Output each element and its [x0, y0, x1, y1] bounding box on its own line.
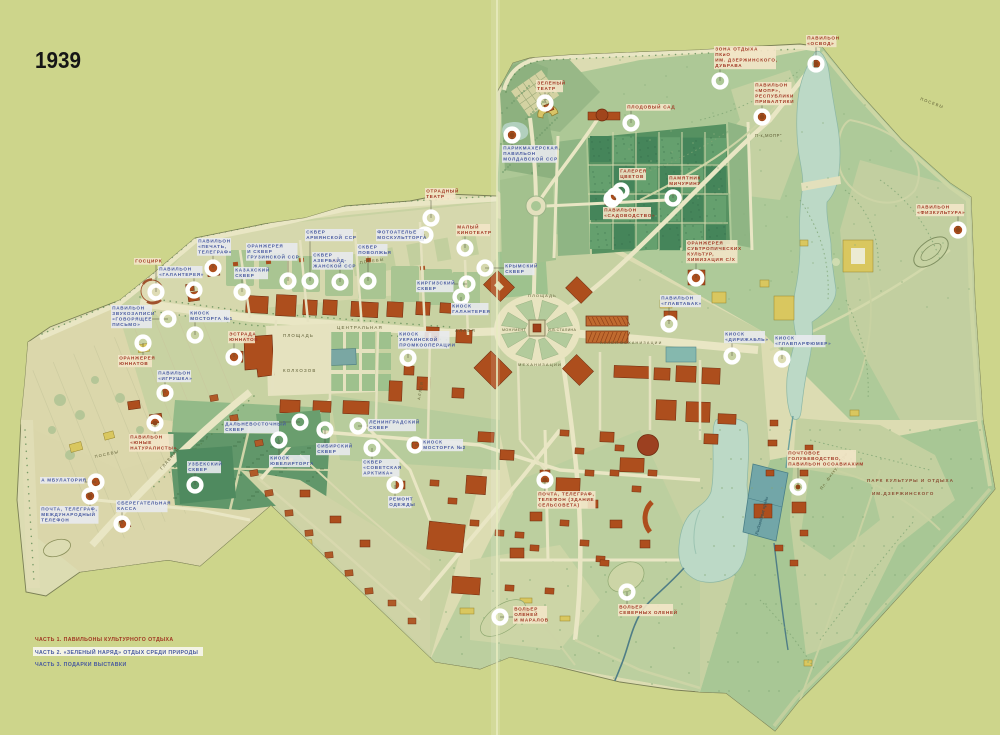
svg-text:ПАВИЛЬОН: ПАВИЛЬОН: [917, 205, 950, 210]
svg-text:ПОЧТА, ТЕЛЕГРАФ,: ПОЧТА, ТЕЛЕГРАФ,: [538, 492, 594, 497]
svg-text:ИМ.ДЗЕРЖИНСКОГО: ИМ.ДЗЕРЖИНСКОГО: [872, 491, 934, 496]
svg-text:СКВЕР: СКВЕР: [235, 273, 254, 278]
svg-text:МОСТОРГА №2: МОСТОРГА №2: [423, 445, 466, 450]
svg-text:СКВЕР: СКВЕР: [417, 286, 436, 291]
svg-text:КОЛХОЗОВ: КОЛХОЗОВ: [283, 368, 317, 373]
svg-text:«САДОВОДСТВО»: «САДОВОДСТВО»: [604, 213, 655, 218]
svg-text:АЗЕРБАЙД-: АЗЕРБАЙД-: [313, 256, 347, 263]
svg-text:МЕЖДУНАРОДНЫЙ: МЕЖДУНАРОДНЫЙ: [41, 510, 96, 517]
svg-text:ТЕАТР: ТЕАТР: [426, 194, 445, 199]
svg-text:«ГЛАВТАБАК»: «ГЛАВТАБАК»: [661, 301, 702, 306]
svg-text:ЭСТРАДА: ЭСТРАДА: [229, 332, 256, 337]
svg-text:ОРАНЖЕРЕЯ: ОРАНЖЕРЕЯ: [247, 244, 283, 249]
svg-text:КРЫМСКИЙ: КРЫМСКИЙ: [505, 262, 538, 269]
svg-text:ЧАСТЬ 3. ПОДАРКИ ВЫСТАВКИ: ЧАСТЬ 3. ПОДАРКИ ВЫСТАВКИ: [35, 662, 127, 668]
svg-text:«ОСВОД»: «ОСВОД»: [807, 41, 834, 46]
svg-text:УКРАИНСКОЙ: УКРАИНСКОЙ: [399, 335, 438, 342]
svg-text:И МАРАЛОВ: И МАРАЛОВ: [514, 618, 549, 623]
svg-text:КУЛЬТУР,: КУЛЬТУР,: [687, 252, 714, 257]
svg-text:«СОВЕТСКАЯ: «СОВЕТСКАЯ: [363, 465, 402, 470]
svg-text:ПЛОДОВЫЙ САД: ПЛОДОВЫЙ САД: [627, 103, 675, 110]
svg-text:ПАВИЛЬОН: ПАВИЛЬОН: [604, 208, 637, 213]
svg-text:ТЕАТР: ТЕАТР: [537, 86, 556, 91]
svg-text:ЛЕНИНГРАДСКИЙ: ЛЕНИНГРАДСКИЙ: [369, 418, 420, 425]
svg-text:ОДЕЖДЫ: ОДЕЖДЫ: [389, 502, 415, 507]
svg-text:АЛЛЕЯ: АЛЛЕЯ: [455, 328, 476, 333]
svg-text:СЕЛЬСОВЕТА): СЕЛЬСОВЕТА): [538, 503, 580, 508]
svg-text:СКВЕР: СКВЕР: [306, 230, 325, 235]
svg-text:ЧАСТЬ 2. «ЗЕЛЕНЫЙ НАРЯД» ОТДЫХ: ЧАСТЬ 2. «ЗЕЛЕНЫЙ НАРЯД» ОТДЫХ СРЕДИ ПРИ…: [35, 648, 198, 656]
svg-text:1939: 1939: [35, 47, 81, 73]
svg-text:СКВЕР: СКВЕР: [225, 427, 244, 432]
svg-text:«ГАЛАНТЕРЕЯ»: «ГАЛАНТЕРЕЯ»: [159, 272, 204, 277]
svg-text:ДАЛЬНЕВОСТОЧНЫЙ: ДАЛЬНЕВОСТОЧНЫЙ: [225, 420, 286, 427]
svg-text:КАЗАХСКИЙ: КАЗАХСКИЙ: [235, 266, 270, 273]
svg-text:ПАВИЛЬОН: ПАВИЛЬОН: [755, 83, 788, 88]
svg-text:СЕВЕРНЫХ ОЛЕНЕЙ: СЕВЕРНЫХ ОЛЕНЕЙ: [619, 608, 678, 615]
svg-text:МИЧУРИНУ: МИЧУРИНУ: [669, 181, 701, 186]
svg-text:ГОСЦИРК: ГОСЦИРК: [135, 259, 162, 264]
svg-text:ЦЕНТРАЛЬНАЯ: ЦЕНТРАЛЬНАЯ: [337, 325, 383, 330]
svg-text:ЗЕЛЕНЫЙ: ЗЕЛЕНЫЙ: [537, 79, 566, 86]
svg-text:И.В.СТАЛИНА: И.В.СТАЛИНА: [548, 328, 577, 332]
svg-text:КИОСК: КИОСК: [775, 336, 795, 341]
svg-text:ДУБРАВА: ДУБРАВА: [715, 63, 742, 68]
svg-text:АЛЛЕЯ: АЛЛЕЯ: [600, 341, 619, 345]
svg-text:СКВЕР: СКВЕР: [363, 460, 382, 465]
svg-text:ВОЛЬЕР: ВОЛЬЕР: [619, 605, 643, 610]
svg-text:СКВЕР: СКВЕР: [317, 449, 336, 454]
svg-text:ОРАНЖЕРЕЯ: ОРАНЖЕРЕЯ: [119, 356, 155, 361]
svg-text:ЧАСТЬ 1. ПАВИЛЬОНЫ КУЛЬТУРНОГО: ЧАСТЬ 1. ПАВИЛЬОНЫ КУЛЬТУРНОГО ОТДЫХА: [35, 637, 174, 643]
svg-text:АРМЯНСКОЙ ССР: АРМЯНСКОЙ ССР: [306, 233, 357, 240]
svg-text:«ФИЗКУЛЬТУРА»: «ФИЗКУЛЬТУРА»: [917, 210, 965, 215]
svg-text:МЕХАНИЗАЦИИ: МЕХАНИЗАЦИИ: [518, 362, 562, 367]
svg-text:ПАВИЛЬОН ОСОАВИАХИМ: ПАВИЛЬОН ОСОАВИАХИМ: [788, 462, 864, 467]
svg-text:СКВЕР: СКВЕР: [188, 467, 207, 472]
svg-text:ТЕЛЕФОН (ЗДАНИЕ: ТЕЛЕФОН (ЗДАНИЕ: [538, 497, 594, 502]
svg-text:ХИМИЗАЦИЯ С/Х: ХИМИЗАЦИЯ С/Х: [687, 257, 736, 262]
svg-text:ПИСЬМО»: ПИСЬМО»: [112, 322, 140, 327]
svg-text:ЮННАТОВ: ЮННАТОВ: [119, 361, 148, 366]
svg-text:КИОСК: КИОСК: [452, 304, 472, 309]
svg-text:МАЛЫЙ: МАЛЫЙ: [457, 223, 479, 230]
svg-text:ВОЛЬЕР: ВОЛЬЕР: [514, 607, 538, 612]
svg-text:«ПЕЧАТЬ,: «ПЕЧАТЬ,: [198, 244, 227, 249]
svg-text:И СКВЕР: И СКВЕР: [247, 249, 272, 254]
svg-text:ЦВЕТОВ: ЦВЕТОВ: [620, 174, 644, 179]
svg-text:КАССА: КАССА: [117, 506, 137, 511]
svg-text:П-к„МОПР“: П-к„МОПР“: [755, 133, 782, 138]
svg-text:«ЮНЫЕ: «ЮНЫЕ: [130, 440, 152, 445]
svg-text:УЗБЕКСКИЙ: УЗБЕКСКИЙ: [188, 460, 222, 467]
svg-text:ОЛЕНЕЙ: ОЛЕНЕЙ: [514, 610, 538, 617]
svg-text:ОРАНЖЕРЕЯ: ОРАНЖЕРЕЯ: [687, 241, 723, 246]
svg-text:ПРОМКООПЕРАЦИИ: ПРОМКООПЕРАЦИИ: [399, 343, 455, 348]
svg-text:СКВЕР: СКВЕР: [369, 425, 388, 430]
svg-text:«ДИРИЖАБЛЬ»: «ДИРИЖАБЛЬ»: [725, 337, 768, 342]
svg-text:ПАВИЛЬОН: ПАВИЛЬОН: [198, 239, 231, 244]
svg-text:ГАЛАНТЕРЕЯ: ГАЛАНТЕРЕЯ: [452, 309, 490, 314]
svg-text:МЕХАНИЗАЦИИ: МЕХАНИЗАЦИИ: [620, 341, 663, 345]
svg-text:ТЕЛЕГРАФ»: ТЕЛЕГРАФ»: [198, 250, 232, 255]
svg-text:ТЕЛЕФОН: ТЕЛЕФОН: [41, 518, 69, 523]
svg-text:ПОЧТОВОЕ: ПОЧТОВОЕ: [788, 451, 820, 456]
svg-text:ПАВИЛЬОН: ПАВИЛЬОН: [112, 306, 145, 311]
svg-text:СКВЕР: СКВЕР: [358, 245, 377, 250]
svg-text:РЕСПУБЛИКИ: РЕСПУБЛИКИ: [755, 94, 794, 99]
svg-text:«ГОВОРЯЩЕЕ: «ГОВОРЯЩЕЕ: [112, 317, 152, 322]
svg-text:ЗВУКОЗАПИСИ: ЗВУКОЗАПИСИ: [112, 311, 155, 316]
svg-text:КИОСК: КИОСК: [190, 311, 210, 316]
svg-text:ПРИБАЛТИКИ: ПРИБАЛТИКИ: [755, 99, 794, 104]
svg-text:СБЕРЕГАТЕЛЬНАЯ: СБЕРЕГАТЕЛЬНАЯ: [117, 501, 171, 506]
svg-text:МОСКУЛЬТТОРГА: МОСКУЛЬТТОРГА: [377, 235, 427, 240]
svg-text:ПАРК КУЛЬТУРЫ И ОТДЫХА: ПАРК КУЛЬТУРЫ И ОТДЫХА: [867, 478, 954, 483]
svg-text:ПЛОЩАДЬ: ПЛОЩАДЬ: [528, 293, 557, 298]
svg-text:ПАВИЛЬОН: ПАВИЛЬОН: [661, 296, 694, 301]
svg-text:ПАМЯТНИК: ПАМЯТНИК: [669, 176, 701, 181]
svg-text:ФОТОАТЕЛЬЕ: ФОТОАТЕЛЬЕ: [377, 230, 417, 235]
svg-text:ГРУЗИНСКОЙ ССР: ГРУЗИНСКОЙ ССР: [247, 253, 299, 260]
svg-text:ПАВИЛЬОН: ПАВИЛЬОН: [159, 267, 192, 272]
svg-text:ПКиО: ПКиО: [715, 52, 731, 57]
svg-text:ПАВИЛЬОН: ПАВИЛЬОН: [158, 371, 191, 376]
svg-text:«ГЛАВПАРФЮМЕР»: «ГЛАВПАРФЮМЕР»: [775, 341, 831, 346]
svg-text:МОНУМЕНТ: МОНУМЕНТ: [502, 328, 526, 332]
svg-text:КИНОТЕАТР: КИНОТЕАТР: [457, 230, 492, 235]
svg-text:КИОСК: КИОСК: [423, 440, 443, 445]
svg-text:МОЛДАВСКОЙ ССР: МОЛДАВСКОЙ ССР: [503, 155, 558, 162]
svg-text:ПАРИКМАХЕРСКАЯ,: ПАРИКМАХЕРСКАЯ,: [503, 146, 560, 151]
svg-text:ЖАНСКОЙ ССР: ЖАНСКОЙ ССР: [312, 262, 356, 269]
svg-text:ПАВИЛЬОН: ПАВИЛЬОН: [130, 435, 163, 440]
svg-text:СУБТРОПИЧЕСКИХ: СУБТРОПИЧЕСКИХ: [687, 246, 742, 251]
svg-text:КИРГИЗСКИЙ: КИРГИЗСКИЙ: [417, 279, 455, 286]
svg-text:СИБИРСКИЙ: СИБИРСКИЙ: [317, 442, 353, 449]
svg-text:ГОЛУБЕВОДСТВО,: ГОЛУБЕВОДСТВО,: [788, 456, 841, 461]
svg-text:«ИГРУШКА»: «ИГРУШКА»: [158, 376, 192, 381]
svg-text:АРКТИКА»: АРКТИКА»: [363, 471, 393, 476]
svg-text:ОТРАДНЫЙ: ОТРАДНЫЙ: [426, 187, 459, 194]
svg-text:КИОСК: КИОСК: [270, 456, 290, 461]
svg-text:ГАЛЕРЕЯ: ГАЛЕРЕЯ: [620, 169, 647, 174]
svg-text:ПАВИЛЬОН: ПАВИЛЬОН: [503, 151, 536, 156]
svg-text:МОСТОРГА №1: МОСТОРГА №1: [190, 316, 233, 321]
svg-text:ЮВЕЛИРТОРГА: ЮВЕЛИРТОРГА: [270, 461, 314, 466]
svg-text:ПЛОЩАДЬ: ПЛОЩАДЬ: [283, 333, 314, 338]
svg-text:РЕМОНТ: РЕМОНТ: [389, 497, 413, 502]
svg-text:«МОПР»,: «МОПР»,: [755, 88, 780, 93]
svg-text:ЗОНА ОТДЫХА: ЗОНА ОТДЫХА: [715, 47, 758, 52]
svg-text:КИОСК: КИОСК: [399, 332, 419, 337]
svg-text:КИОСК: КИОСК: [725, 332, 745, 337]
svg-text:СКВЕР: СКВЕР: [313, 253, 332, 258]
svg-text:ИМ. ДЗЕРЖИНСКОГО,: ИМ. ДЗЕРЖИНСКОГО,: [715, 58, 778, 63]
svg-text:ПАВИЛЬОН: ПАВИЛЬОН: [807, 36, 840, 41]
svg-text:А МБУЛАТОРИЯ: А МБУЛАТОРИЯ: [41, 478, 87, 483]
svg-text:НАТУРАЛИСТЫ»: НАТУРАЛИСТЫ»: [130, 446, 177, 451]
svg-text:ПОВОЛЖЬЯ: ПОВОЛЖЬЯ: [358, 250, 391, 255]
svg-text:ЮННАТОВ: ЮННАТОВ: [229, 337, 258, 342]
svg-text:ПОЧТА, ТЕЛЕГРАФ,: ПОЧТА, ТЕЛЕГРАФ,: [41, 507, 97, 512]
svg-text:СКВЕР: СКВЕР: [505, 269, 524, 274]
